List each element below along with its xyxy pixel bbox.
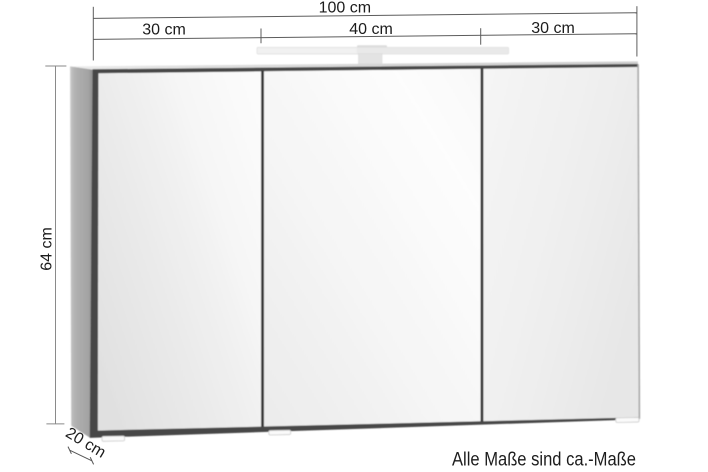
svg-text:30 cm: 30 cm — [142, 22, 186, 39]
svg-text:30 cm: 30 cm — [531, 20, 575, 37]
svg-text:Alle Maße sind ca.-Maße: Alle Maße sind ca.-Maße — [452, 449, 636, 471]
svg-text:100 cm: 100 cm — [319, 0, 371, 17]
svg-text:64 cm: 64 cm — [39, 227, 56, 271]
svg-text:40 cm: 40 cm — [349, 21, 393, 38]
